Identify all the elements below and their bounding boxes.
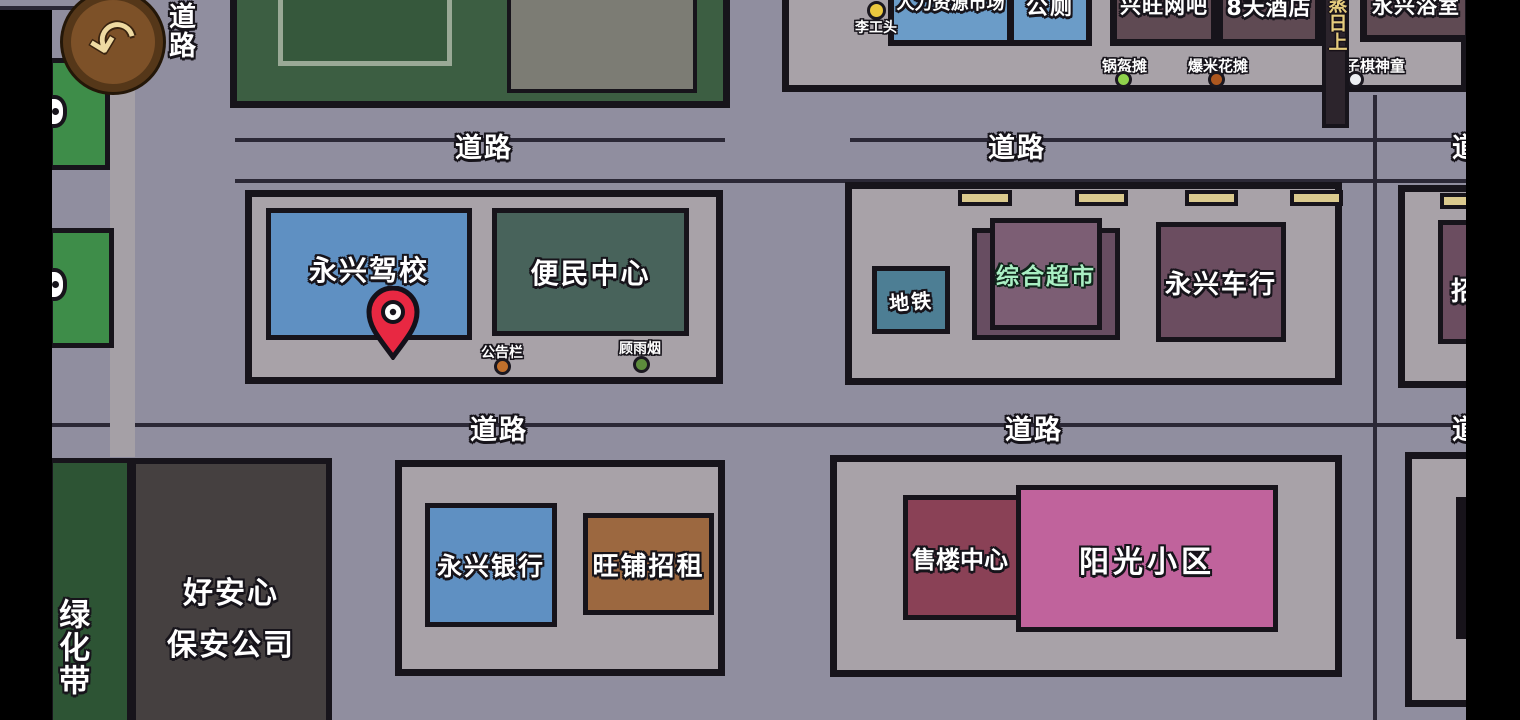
road-label-vertical: 道路: [164, 2, 195, 60]
npc-marker-dot[interactable]: [633, 356, 650, 373]
right-letterbox-bar: [1466, 0, 1520, 720]
bathhouse-label: 永兴浴室: [1367, 0, 1465, 20]
green-belt-label: 绿化带: [54, 598, 88, 697]
foreman-marker-label: 李工头: [855, 17, 897, 37]
driving-school-label: 永兴驾校: [309, 249, 429, 289]
stall-marker-dot[interactable]: [1208, 71, 1225, 88]
sales-center-label: 售楼中心: [912, 540, 1008, 575]
sunshine-community-building[interactable]: 阳光小区: [1016, 485, 1278, 632]
subway-entrance[interactable]: 地铁: [872, 266, 950, 334]
notice-board-dot[interactable]: [494, 358, 511, 375]
internet-cafe-building[interactable]: 兴旺网吧: [1110, 0, 1218, 46]
hotel-building[interactable]: 8天酒店: [1216, 0, 1322, 46]
security-company-label-line1: 好安心: [183, 568, 279, 612]
skylight: [1290, 190, 1343, 206]
bank-building[interactable]: 永兴银行: [425, 503, 557, 627]
left-letterbox-bar: [0, 10, 52, 720]
road-label: 道路: [470, 408, 528, 447]
bathhouse-building[interactable]: 永兴浴室: [1360, 0, 1472, 42]
sunshine-community-label: 阳光小区: [1079, 537, 1215, 581]
service-center-label: 便民中心: [530, 252, 650, 292]
road-label: 道路: [988, 126, 1046, 165]
back-button[interactable]: ↶: [63, 0, 163, 92]
skylight: [958, 190, 1012, 206]
security-company-label-line2: 保安公司: [167, 620, 295, 664]
shop-for-rent-building[interactable]: 旺铺招租: [583, 513, 714, 615]
vertical-sign-label: 蒸日上: [1326, 0, 1346, 124]
location-pin[interactable]: [364, 286, 422, 360]
gray-courtyard: [507, 0, 697, 93]
supermarket-label: 综合超市: [996, 257, 1096, 291]
npc-marker-label: 顾雨烟: [619, 338, 661, 358]
sales-center-building[interactable]: 售楼中心: [903, 495, 1023, 620]
car-dealer-label: 永兴车行: [1165, 264, 1277, 301]
public-toilet-building[interactable]: 公厕: [1008, 0, 1092, 46]
public-toilet-label: 公厕: [1014, 0, 1086, 21]
bank-label: 永兴银行: [437, 547, 545, 583]
road-label: 道路: [1005, 408, 1063, 447]
supermarket-building[interactable]: 综合超市: [990, 218, 1102, 330]
vertical-sign[interactable]: 蒸日上: [1322, 0, 1349, 128]
shop-for-rent-label: 旺铺招租: [592, 546, 704, 583]
car-dealer-building[interactable]: 永兴车行: [1156, 222, 1286, 342]
security-company-building[interactable]: 好安心 保安公司: [130, 458, 332, 720]
vertical-road-center-line: [1373, 95, 1377, 720]
skylight: [1075, 190, 1128, 206]
hr-market-building[interactable]: 人力资源市场: [888, 0, 1013, 46]
subway-label: 地铁: [888, 284, 934, 316]
stall-marker-dot[interactable]: [1347, 71, 1364, 88]
hotel-label: 8天酒店: [1223, 0, 1315, 22]
back-arrow-icon: ↶: [82, 8, 143, 76]
service-center-building[interactable]: 便民中心: [492, 208, 689, 336]
internet-cafe-label: 兴旺网吧: [1117, 0, 1211, 20]
stall-marker-dot[interactable]: [1115, 71, 1132, 88]
green-roof-inner-court: [278, 0, 452, 66]
road2-center-line: [0, 423, 1468, 427]
hr-market-label: 人力资源市场: [894, 0, 1007, 15]
city-map: ↶ 道路 人力资源市场 公厕 李工头 兴旺网吧 8天酒店 蒸日上 永兴浴室 锅盔…: [0, 0, 1520, 720]
road-label: 道路: [455, 126, 513, 165]
skylight: [1185, 190, 1238, 206]
